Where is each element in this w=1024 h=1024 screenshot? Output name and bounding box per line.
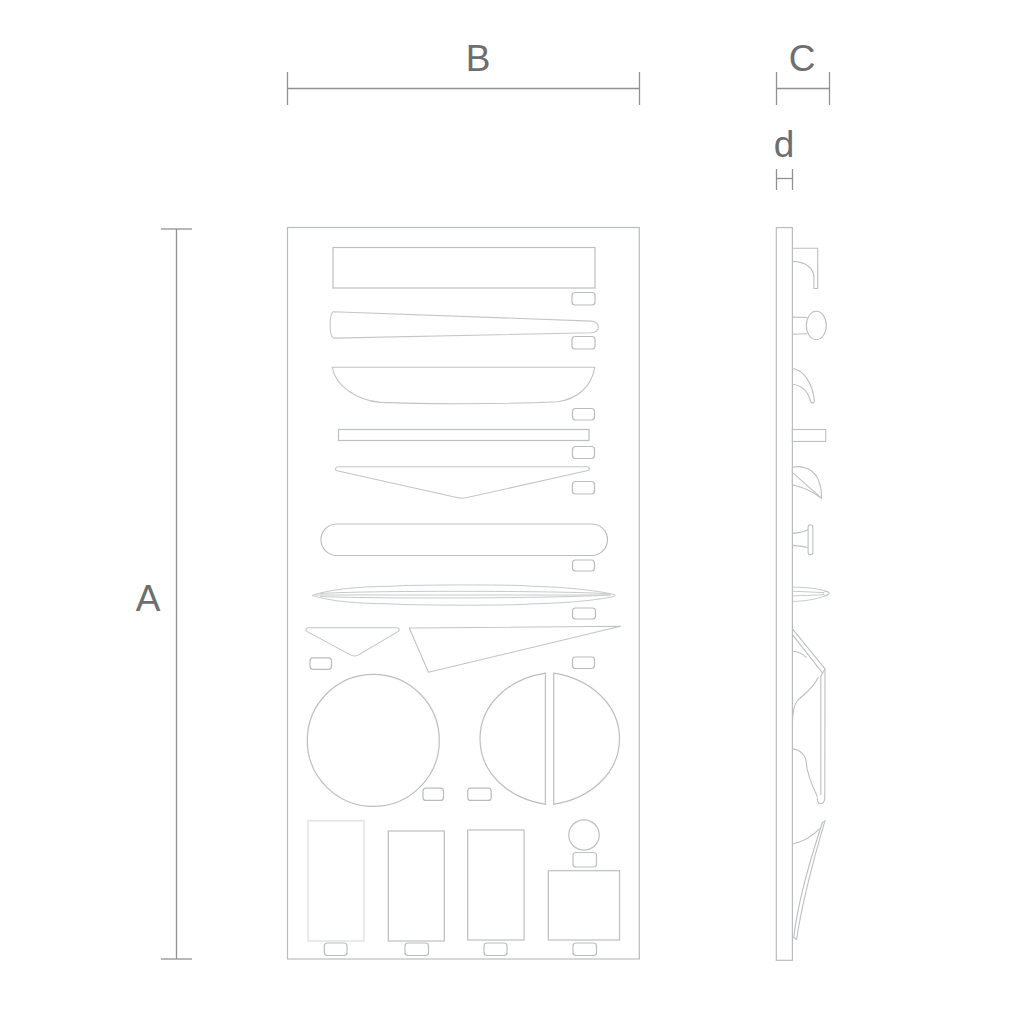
svg-text:C: C [789,38,816,79]
svg-text:B: B [466,38,491,79]
svg-text:A: A [136,578,161,619]
svg-text:d: d [774,124,795,165]
